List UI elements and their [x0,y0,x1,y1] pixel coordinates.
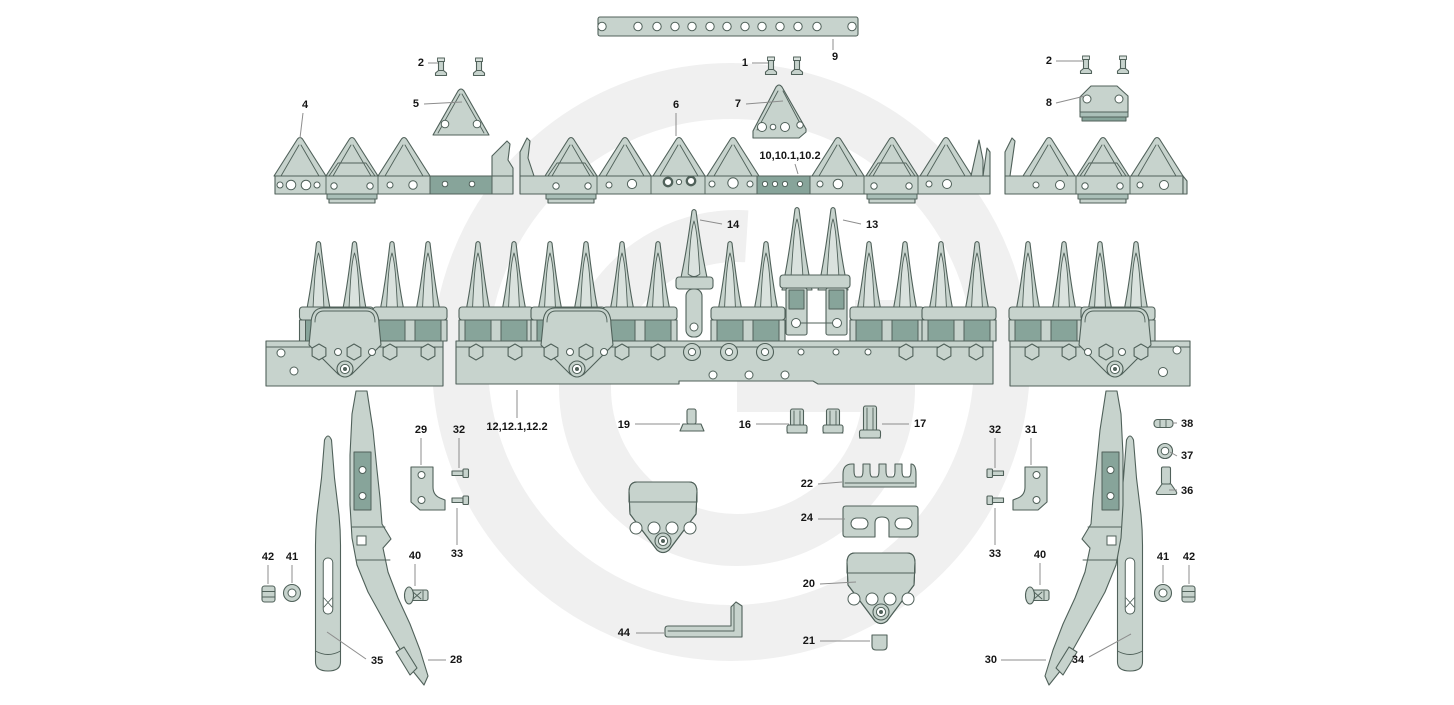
knife-back-plate-24 [843,506,918,537]
rivet-bolt [792,57,803,75]
skid-holder-30 [1045,391,1123,685]
part-number: 28 [450,654,462,666]
leader-line [843,220,861,224]
rivet-2b-left [474,58,485,76]
part-label-40-right: 40 [1034,549,1046,585]
part-number: 10,10.1,10.2 [759,150,820,162]
exploded-parts-diagram: 12245678910,10.1,10.212,12.1,12.21314161… [0,0,1454,705]
leader-line [300,113,303,138]
hex-bolt-16a [787,409,807,433]
part-label-13: 13 [843,219,878,231]
part-number: 12,12.1,12.2 [486,421,547,433]
part-number: 40 [409,550,421,562]
part-number: 13 [866,219,878,231]
part-number: 33 [451,548,463,560]
flat-head-bolt-19 [680,409,704,431]
part-number: 21 [803,635,815,647]
part-label-19: 19 [618,419,680,431]
bolt-40-right [1026,587,1050,604]
part-number: 32 [453,424,465,436]
part-label-31: 31 [1025,424,1037,465]
part-number: 29 [415,424,427,436]
part-label-16: 16 [739,419,789,431]
part-label-33-left: 33 [451,508,463,560]
bracket-29 [411,467,445,510]
part-label-38: 38 [1172,418,1193,430]
part-number: 35 [371,655,383,667]
rivet-bolt [1081,56,1092,74]
part-number: 16 [739,419,751,431]
part-label-2-left: 2 [418,57,438,69]
part-label-33-right: 33 [989,508,1001,560]
double-guard-finger [850,242,924,342]
part-label-37: 37 [1170,450,1193,462]
knife-section-5 [433,89,489,135]
double-guard-finger [1009,242,1083,342]
part-number: 22 [801,478,813,490]
parts-diagram-page: 12245678910,10.1,10.212,12.1,12.21314161… [0,0,1454,705]
part-number: 41 [1157,551,1169,563]
backing-strip-9 [598,17,858,36]
rivet-bolt [1118,56,1129,74]
part-number: 2 [418,57,424,69]
part-label-41-left: 41 [286,551,298,583]
part-number: 40 [1034,549,1046,561]
part-label-42-left: 42 [262,551,274,584]
rivet-2a-left [436,58,447,76]
part-number: 30 [985,654,997,666]
part-label-41-right: 41 [1157,551,1169,583]
washer-41-right [1155,585,1172,602]
bolt-33-left [452,496,469,505]
part-number: 33 [989,548,1001,560]
part-label-29: 29 [415,424,427,465]
hex-bolt-16b [823,409,843,433]
part-number: 24 [801,512,814,524]
square-nut-21 [872,635,887,650]
spacer-42-right [1182,586,1195,602]
part-label-30: 30 [985,654,1046,666]
part-number: 37 [1181,450,1193,462]
knife-bar-assembly-4 [274,138,513,204]
bracket-31 [1013,467,1047,510]
leader-line [795,164,798,174]
roll-pin-38 [1154,420,1173,428]
rivet-bolt [474,58,485,76]
part-number: 44 [618,627,631,639]
part-number: 2 [1046,55,1052,67]
part-label-4: 4 [300,99,309,138]
part-number: 17 [914,418,926,430]
part-label-42-right: 42 [1183,551,1195,584]
part-number: 42 [262,551,274,563]
rivet-2b-right [1118,56,1129,74]
ring-37 [1158,444,1173,459]
part-number: 38 [1181,418,1193,430]
knife-clip-22 [843,464,916,487]
bolt-40-left [405,587,429,604]
part-label-40-left: 40 [409,550,421,586]
divider-rod-35 [316,436,341,671]
washer-41-left [284,585,301,602]
rivet-bolt [436,58,447,76]
part-number: 5 [413,98,419,110]
part-number: 32 [989,424,1001,436]
part-number: 8 [1046,97,1052,109]
part-number: 14 [727,219,740,231]
part-label-8: 8 [1046,96,1085,109]
part-number: 42 [1183,551,1195,563]
part-label-28: 28 [428,654,462,666]
part-number: 4 [302,99,309,111]
part-label-2-right: 2 [1046,55,1083,67]
part-number: 20 [803,578,815,590]
part-label-10: 10,10.1,10.2 [759,150,820,174]
rivet-2a-right [1081,56,1092,74]
part-number: 6 [673,99,679,111]
part-number: 9 [832,51,838,63]
part-number: 34 [1072,654,1085,666]
part-label-9: 9 [832,39,838,63]
spacer-42-left [262,586,275,602]
part-number: 31 [1025,424,1037,436]
tall-double-guard-13 [780,208,850,336]
cutter-bar-middle-12 [456,341,993,384]
part-label-12: 12,12.1,12.2 [486,390,547,433]
rivet-1b [792,57,803,75]
part-number: 36 [1181,485,1193,497]
part-number: 19 [618,419,630,431]
wear-plate-8 [1080,86,1128,121]
part-number: 1 [742,57,748,69]
part-number: 7 [735,98,741,110]
knife-bar-assembly-right [1005,138,1187,204]
part-number: 41 [286,551,298,563]
double-guard-finger [373,242,447,342]
